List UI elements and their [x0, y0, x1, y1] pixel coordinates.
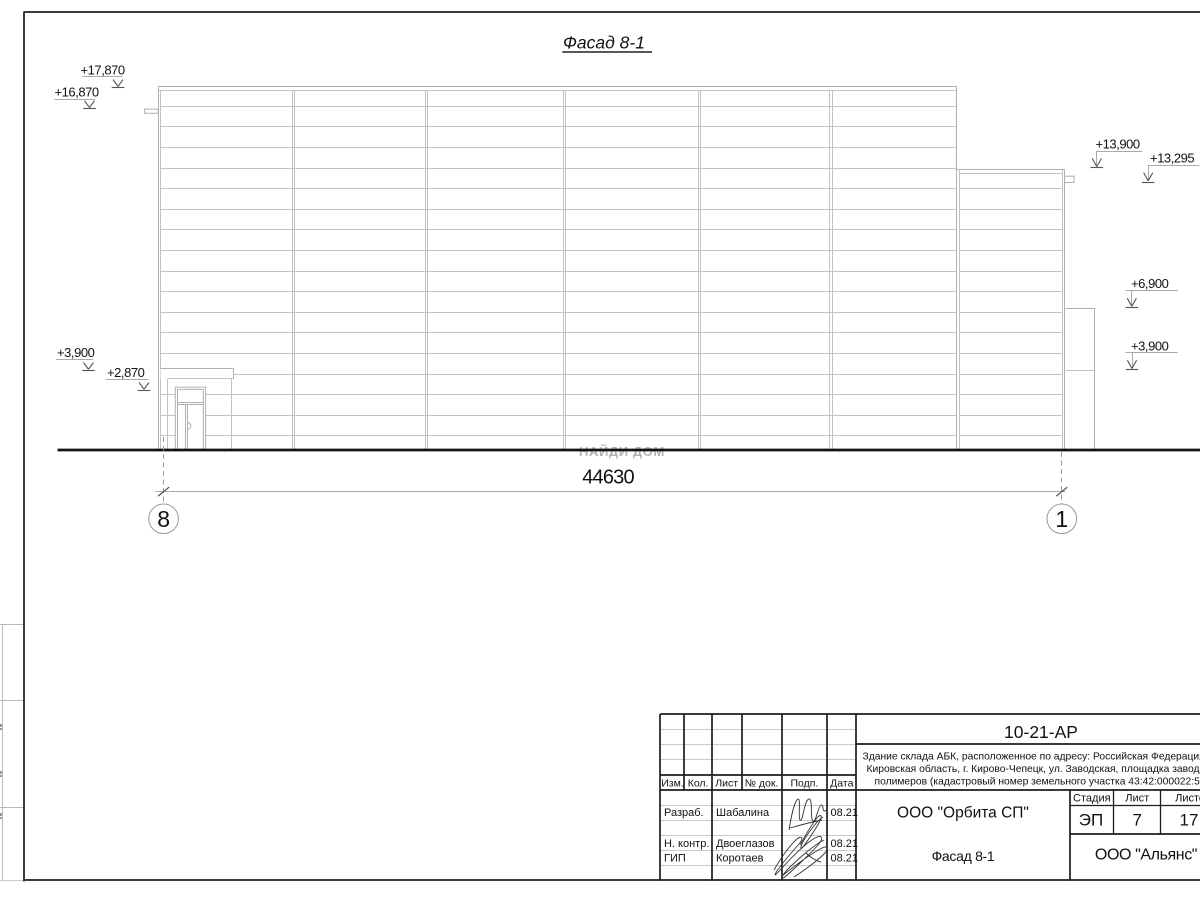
svg-text:Кол.: Кол.: [688, 777, 709, 789]
svg-text:08.21: 08.21: [831, 807, 859, 819]
svg-text:Фасад 8-1: Фасад 8-1: [563, 33, 645, 53]
svg-text:8: 8: [157, 506, 170, 532]
svg-text:Кировская область, г. Кирово-Ч: Кировская область, г. Кирово-Чепецк, ул.…: [867, 763, 1200, 775]
svg-text:+2,870: +2,870: [107, 365, 145, 380]
svg-text:+3,900: +3,900: [1131, 338, 1169, 353]
svg-text:44630: 44630: [582, 467, 634, 489]
svg-text:Подп.: Подп.: [790, 777, 818, 789]
svg-text:Лист: Лист: [1125, 793, 1149, 805]
svg-text:10-21-АР: 10-21-АР: [1004, 722, 1078, 742]
svg-text:+6,900: +6,900: [1131, 276, 1169, 291]
svg-text:Лист: Лист: [715, 777, 738, 789]
svg-text:Здание склада АБК, расположенн: Здание склада АБК, расположенное по адре…: [863, 752, 1200, 763]
svg-text:+13,900: +13,900: [1096, 137, 1140, 152]
svg-text:1: 1: [1055, 506, 1068, 532]
svg-text:+17,870: +17,870: [81, 62, 125, 77]
svg-text:Коротаев: Коротаев: [716, 853, 764, 865]
svg-text:Стадия: Стадия: [1073, 793, 1111, 805]
svg-text:Двоеглазов: Двоеглазов: [716, 838, 775, 850]
svg-text:НАЙДИ ДОМ: НАЙДИ ДОМ: [579, 444, 665, 459]
svg-text:Шабалина: Шабалина: [716, 807, 770, 819]
svg-text:7: 7: [1132, 811, 1141, 830]
svg-text:08.21: 08.21: [831, 838, 859, 850]
svg-text:ЭП: ЭП: [1079, 811, 1103, 830]
svg-text:08.21: 08.21: [831, 853, 859, 865]
svg-text:+13,295: +13,295: [1150, 151, 1194, 166]
svg-text:ООО "Альянс": ООО "Альянс": [1095, 847, 1197, 864]
svg-text:полимеров (кадастровый номер з: полимеров (кадастровый номер земельного …: [875, 777, 1200, 788]
svg-text:Разраб.: Разраб.: [664, 807, 704, 819]
svg-text:Дата: Дата: [830, 777, 853, 789]
svg-text:Н. контр.: Н. контр.: [664, 838, 709, 850]
svg-text:№ док.: № док.: [745, 777, 779, 789]
svg-text:Изм.: Изм.: [661, 777, 684, 789]
svg-text:17: 17: [1180, 811, 1199, 830]
svg-text:ООО "Орбита СП": ООО "Орбита СП": [897, 805, 1029, 822]
svg-text:+3,900: +3,900: [57, 345, 95, 360]
svg-text:ГИП: ГИП: [664, 853, 686, 865]
svg-text:Фасад 8-1: Фасад 8-1: [932, 848, 995, 864]
svg-text:Листов: Листов: [1175, 793, 1200, 805]
svg-text:+16,870: +16,870: [55, 85, 99, 100]
